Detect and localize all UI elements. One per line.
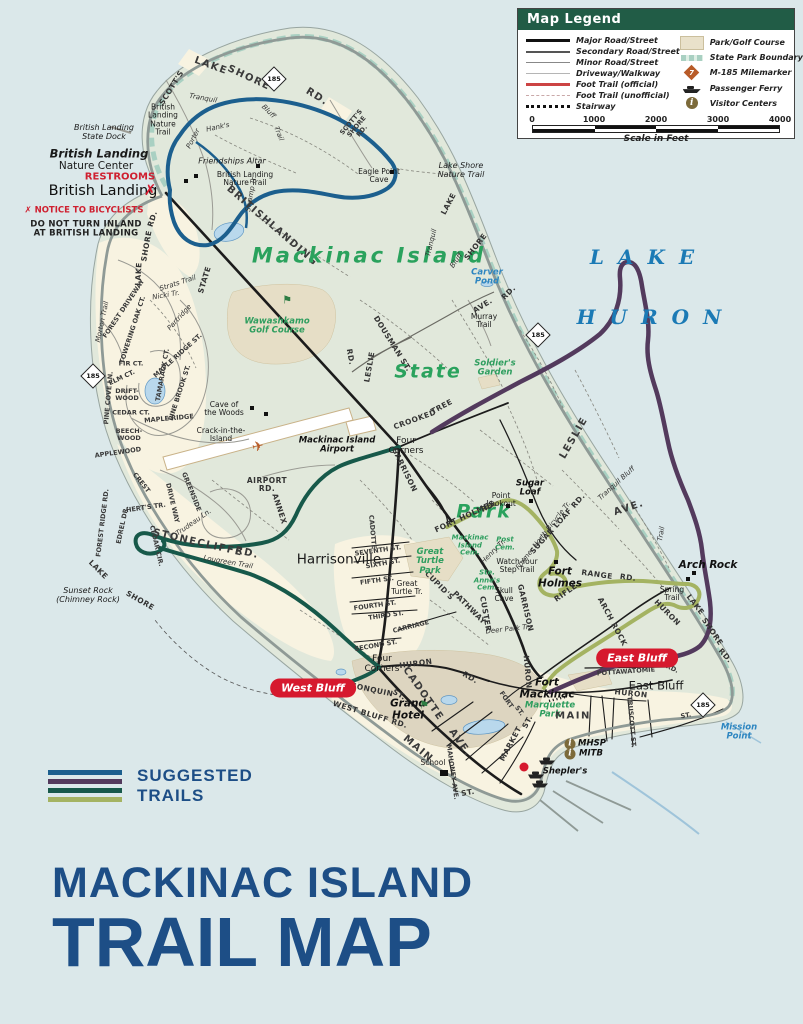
suggested-trails-line2: TRAILS <box>137 786 253 806</box>
dot-icon <box>506 504 510 508</box>
dot-icon <box>692 571 696 575</box>
dot-icon <box>194 174 198 178</box>
legend-symbol-label: Visitor Centers <box>710 99 777 108</box>
dot-icon <box>184 179 188 183</box>
bluff-badge: West Bluff <box>270 679 356 698</box>
legend-line-label: Minor Road/Street <box>576 58 658 67</box>
scale-tick: 1000 <box>583 115 605 124</box>
dot-icon <box>256 164 260 168</box>
legend-symbol-label: Park/Golf Course <box>710 38 785 47</box>
legend-line-label: Driveway/Walkway <box>576 69 660 78</box>
visitor-icon: i <box>680 97 704 110</box>
secondary-line-sample <box>526 51 570 53</box>
dot-icon <box>390 170 394 174</box>
ferry-glyph <box>683 83 701 93</box>
map-title-line2: TRAIL MAP <box>52 907 473 977</box>
legend-line-item: Stairway <box>526 101 680 112</box>
suggested-trail-color-1 <box>48 779 122 784</box>
ferry-icon <box>539 756 555 765</box>
ferry-icon <box>532 779 548 788</box>
map-legend: Map Legend Major Road/StreetSecondary Ro… <box>517 8 795 139</box>
legend-scale-bar: 01000200030004000 Scale in Feet <box>518 113 794 144</box>
suggested-trail-color-0 <box>48 770 122 775</box>
bluff-badge: East Bluff <box>596 649 678 668</box>
legend-line-item: Minor Road/Street <box>526 57 680 68</box>
suggested-trail-color-3 <box>48 797 122 802</box>
foot-line-sample <box>526 83 570 86</box>
legend-line-label: Major Road/Street <box>576 36 658 45</box>
legend-lines: Major Road/StreetSecondary Road/StreetMi… <box>526 35 680 112</box>
park-icon <box>680 36 704 49</box>
school-icon <box>440 770 448 776</box>
scale-bar <box>532 125 780 133</box>
scale-tick: 0 <box>529 115 535 124</box>
legend-title: Map Legend <box>518 9 794 30</box>
suggested-trails-line1: SUGGESTED <box>137 766 253 786</box>
scale-ticks: 01000200030004000 <box>532 115 780 125</box>
minor-line-sample <box>526 62 570 63</box>
visitor-glyph: i <box>686 97 698 109</box>
suggested-trail-color-bars <box>48 766 122 806</box>
legend-symbol-item: 7M-185 Milemarker <box>680 65 803 80</box>
legend-line-label: Foot Trail (official) <box>576 80 658 89</box>
legend-symbol-label: Passenger Ferry <box>710 84 783 93</box>
legend-line-item: Foot Trail (unofficial) <box>526 90 680 101</box>
milemarker-icon: 7 <box>680 66 704 79</box>
legend-symbol-item: iVisitor Centers <box>680 96 803 111</box>
x-icon: ✗ <box>144 181 157 199</box>
boundary-glyph <box>681 55 703 61</box>
park-glyph <box>680 36 704 50</box>
legend-symbol-label: State Park Boundary <box>710 53 803 62</box>
legend-line-item: Major Road/Street <box>526 35 680 46</box>
milemarker-glyph: 7 <box>684 65 700 81</box>
legend-symbols: Park/Golf CourseState Park Boundary7M-18… <box>680 35 803 112</box>
legend-symbol-item: Passenger Ferry <box>680 81 803 96</box>
map-title: MACKINAC ISLAND TRAIL MAP <box>52 862 473 977</box>
suggested-trails-label: SUGGESTED TRAILS <box>137 766 253 805</box>
legend-line-label: Secondary Road/Street <box>576 47 680 56</box>
legend-line-item: Foot Trail (official) <box>526 79 680 90</box>
suggested-trails-legend: SUGGESTED TRAILS <box>48 766 253 806</box>
flag-icon: ⚑ <box>282 294 292 307</box>
scale-tick: 2000 <box>645 115 667 124</box>
dot-icon <box>264 412 268 416</box>
major-line-sample <box>526 39 570 42</box>
boundary-icon <box>680 51 704 64</box>
suggested-trail-color-2 <box>48 788 122 793</box>
scale-tick: 3000 <box>707 115 729 124</box>
scale-tick: 4000 <box>769 115 791 124</box>
legend-symbol-label: M-185 Milemarker <box>710 68 792 77</box>
legend-symbol-item: State Park Boundary <box>680 50 803 65</box>
ferry-icon <box>528 770 544 779</box>
driveway-line-sample <box>526 73 570 74</box>
dot-icon <box>686 577 690 581</box>
legend-line-label: Foot Trail (unofficial) <box>576 91 670 100</box>
foot-un-line-sample <box>526 95 570 96</box>
dot-icon <box>529 499 533 503</box>
dot-icon <box>250 406 254 410</box>
legend-line-item: Driveway/Walkway <box>526 68 680 79</box>
dot-icon <box>554 560 558 564</box>
flag-icon: ⚑ <box>419 699 429 712</box>
legend-symbol-item: Park/Golf Course <box>680 35 803 50</box>
mackinac-trail-map: British Landing State DockBritish Landin… <box>0 0 803 1024</box>
visitor-icon: i <box>565 749 576 760</box>
legend-line-item: Secondary Road/Street <box>526 46 680 57</box>
ferry-icon <box>680 82 704 95</box>
legend-line-label: Stairway <box>576 102 615 111</box>
map-title-line1: MACKINAC ISLAND <box>52 862 473 905</box>
scale-caption: Scale in Feet <box>532 134 780 144</box>
stairway-line-sample <box>526 105 570 108</box>
